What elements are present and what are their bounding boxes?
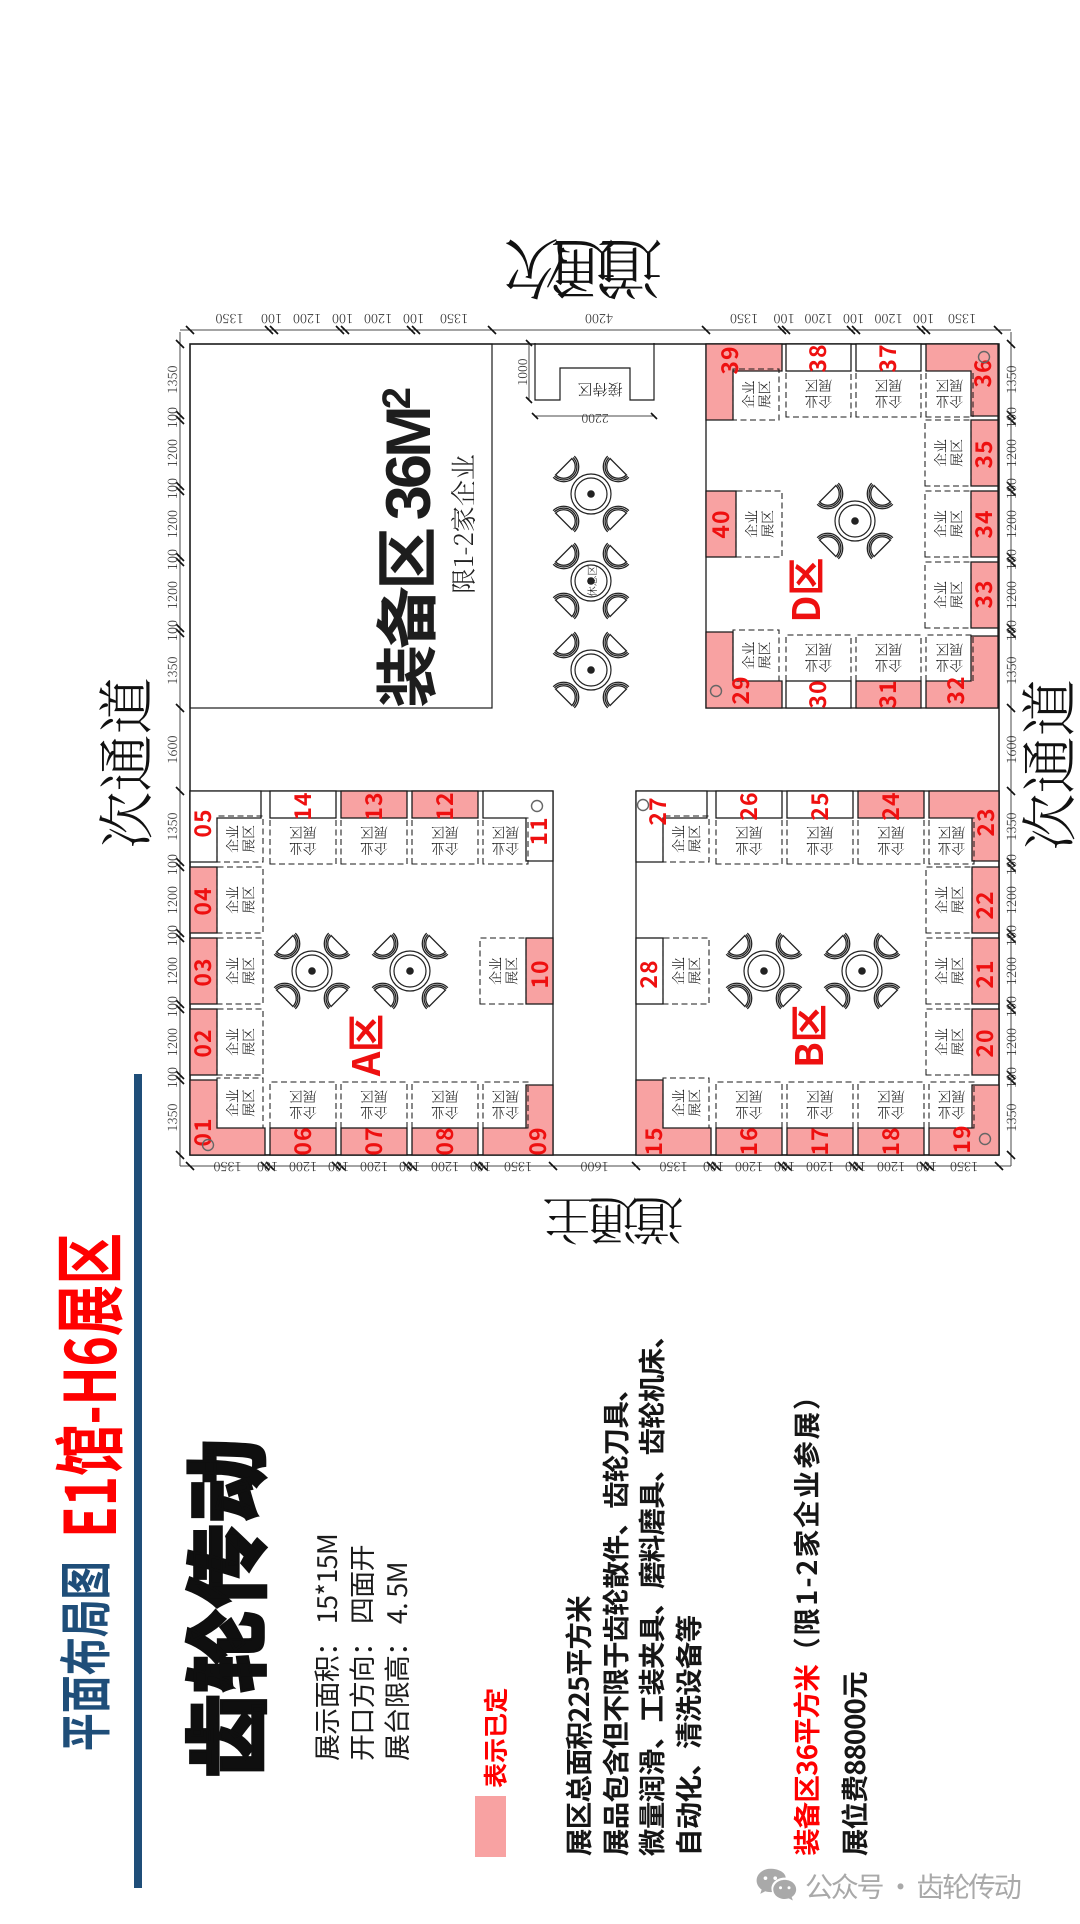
svg-text:100: 100 [1001,854,1020,875]
svg-text:展区: 展区 [501,957,521,985]
svg-text:100: 100 [774,1158,795,1177]
svg-text:03: 03 [184,957,218,986]
svg-text:1200: 1200 [804,310,832,329]
svg-text:1200: 1200 [293,310,321,329]
svg-text:1350: 1350 [213,1158,241,1177]
svg-text:26: 26 [730,791,764,820]
svg-text:道: 道 [597,225,663,320]
svg-text:100: 100 [328,1158,349,1177]
svg-text:展区: 展区 [947,1028,967,1056]
svg-text:展区: 展区 [431,824,459,844]
svg-text:100: 100 [162,620,181,641]
svg-text:展区: 展区 [805,377,833,397]
svg-text:100: 100 [332,310,353,329]
svg-text:展区: 展区 [875,641,903,661]
svg-text:1200: 1200 [1001,510,1020,538]
svg-text:06: 06 [284,1126,318,1155]
svg-text:次通道: 次通道 [82,678,164,849]
svg-text:1600: 1600 [162,735,181,763]
svg-text:1350: 1350 [1001,365,1020,393]
svg-text:展区: 展区 [946,581,966,609]
svg-text:100: 100 [162,854,181,875]
svg-text:1200: 1200 [162,886,181,914]
svg-text:展区: 展区 [938,824,966,844]
svg-text:1200: 1200 [162,439,181,467]
svg-text:100: 100 [913,310,934,329]
svg-text:1200: 1200 [1001,1028,1020,1056]
svg-text:32: 32 [937,675,971,704]
svg-text:展区: 展区 [938,1088,966,1108]
svg-text:B区: B区 [779,1004,834,1068]
svg-text:100: 100 [1001,925,1020,946]
svg-text:展区: 展区 [238,1028,258,1056]
svg-text:次通道: 次通道 [1005,680,1080,851]
svg-text:1000: 1000 [513,358,531,385]
svg-text:展区: 展区 [805,641,833,661]
svg-text:展区: 展区 [946,439,966,467]
svg-text:12: 12 [426,791,460,820]
svg-text:100: 100 [773,310,794,329]
svg-text:100: 100 [703,1158,724,1177]
svg-text:1200: 1200 [289,1158,317,1177]
svg-text:接待区: 接待区 [577,379,622,400]
svg-text:展区: 展区 [806,1088,834,1108]
svg-text:08: 08 [426,1126,460,1155]
svg-text:100: 100 [916,1158,937,1177]
svg-text:30: 30 [799,679,833,708]
svg-text:100: 100 [845,1158,866,1177]
svg-text:24: 24 [872,791,906,820]
svg-text:11: 11 [520,816,554,845]
svg-text:13: 13 [355,791,389,820]
svg-text:100: 100 [257,1158,278,1177]
svg-text:展区: 展区 [754,642,774,670]
svg-text:100: 100 [1001,478,1020,499]
svg-text:04: 04 [184,886,218,915]
svg-text:100: 100 [843,310,864,329]
svg-text:23: 23 [967,807,1001,836]
svg-text:1200: 1200 [1001,581,1020,609]
svg-text:29: 29 [722,675,756,704]
svg-text:休息区: 休息区 [585,565,600,597]
svg-text:展区: 展区 [360,824,388,844]
svg-text:1200: 1200 [162,957,181,985]
svg-text:1200: 1200 [1001,957,1020,985]
svg-text:展区: 展区 [735,824,763,844]
svg-text:16: 16 [730,1126,764,1155]
svg-text:100: 100 [162,996,181,1017]
svg-text:展区: 展区 [735,1088,763,1108]
svg-text:展区: 展区 [492,1088,520,1108]
svg-text:15: 15 [635,1126,669,1155]
svg-text:1200: 1200 [162,1028,181,1056]
svg-text:31: 31 [869,679,903,708]
svg-text:100: 100 [162,478,181,499]
svg-text:限1-2家企业: 限1-2家企业 [444,454,481,593]
svg-text:22: 22 [966,890,1000,919]
svg-text:D区: D区 [776,557,831,622]
svg-text:14: 14 [284,791,318,820]
svg-text:1350: 1350 [215,310,243,329]
svg-text:34: 34 [965,509,999,538]
svg-text:1200: 1200 [1001,439,1020,467]
svg-text:1350: 1350 [659,1158,687,1177]
svg-text:100: 100 [1001,407,1020,428]
svg-text:18: 18 [872,1126,906,1155]
svg-text:主: 主 [542,1186,594,1261]
svg-text:1350: 1350 [948,310,976,329]
svg-text:100: 100 [1001,1067,1020,1088]
svg-text:展区: 展区 [806,824,834,844]
svg-text:1600: 1600 [580,1158,608,1177]
svg-text:09: 09 [519,1126,553,1155]
svg-text:展区: 展区 [238,957,258,985]
svg-text:100: 100 [162,549,181,570]
svg-text:1350: 1350 [950,1158,978,1177]
svg-text:1350: 1350 [162,1103,181,1131]
svg-text:展区: 展区 [877,1088,905,1108]
svg-text:展区: 展区 [936,641,964,661]
svg-text:100: 100 [399,1158,420,1177]
svg-text:17: 17 [801,1126,835,1155]
svg-text:装备区 36M2: 装备区 36M2 [358,387,449,708]
svg-text:1200: 1200 [162,581,181,609]
svg-text:1350: 1350 [162,365,181,393]
svg-text:1350: 1350 [162,812,181,840]
svg-text:展区: 展区 [360,1088,388,1108]
svg-text:1200: 1200 [431,1158,459,1177]
svg-text:37: 37 [869,343,903,372]
svg-text:100: 100 [162,925,181,946]
svg-text:100: 100 [261,310,282,329]
svg-text:05: 05 [184,808,218,837]
svg-text:展区: 展区 [289,824,317,844]
svg-text:展区: 展区 [289,1088,317,1108]
svg-text:展区: 展区 [684,957,704,985]
svg-text:07: 07 [355,1126,389,1155]
svg-text:100: 100 [1001,620,1020,641]
svg-text:40: 40 [702,509,736,538]
svg-text:1350: 1350 [1001,1103,1020,1131]
svg-text:展区: 展区 [431,1088,459,1108]
svg-text:展区: 展区 [757,510,777,538]
svg-text:展区: 展区 [238,886,258,914]
svg-text:道: 道 [632,1186,684,1261]
svg-text:02: 02 [184,1028,218,1057]
svg-text:展区: 展区 [947,886,967,914]
svg-text:1200: 1200 [364,310,392,329]
svg-text:1200: 1200 [877,1158,905,1177]
svg-text:展区: 展区 [754,381,774,409]
svg-text:展区: 展区 [947,957,967,985]
svg-text:展区: 展区 [684,1089,704,1117]
svg-text:1200: 1200 [360,1158,388,1177]
svg-text:展区: 展区 [684,825,704,853]
svg-text:100: 100 [162,1067,181,1088]
svg-text:35: 35 [965,439,999,468]
svg-text:100: 100 [470,1158,491,1177]
svg-text:展区: 展区 [238,825,258,853]
svg-text:1200: 1200 [806,1158,834,1177]
svg-text:36: 36 [964,358,998,387]
svg-text:28: 28 [630,959,664,988]
svg-text:A区: A区 [336,1014,391,1077]
svg-text:20: 20 [966,1028,1000,1057]
svg-text:展区: 展区 [875,377,903,397]
svg-text:1350: 1350 [504,1158,532,1177]
svg-text:展区: 展区 [936,377,964,397]
svg-text:100: 100 [1001,549,1020,570]
svg-text:1350: 1350 [440,310,468,329]
svg-text:39: 39 [711,345,745,374]
svg-text:21: 21 [966,959,1000,988]
svg-text:100: 100 [1001,996,1020,1017]
svg-text:1200: 1200 [874,310,902,329]
svg-text:通: 通 [587,1186,639,1261]
svg-text:展区: 展区 [877,824,905,844]
svg-text:1350: 1350 [162,656,181,684]
svg-text:展区: 展区 [492,824,520,844]
svg-text:展区: 展区 [946,510,966,538]
svg-text:100: 100 [162,407,181,428]
svg-text:2200: 2200 [581,410,608,428]
svg-text:1200: 1200 [1001,886,1020,914]
svg-text:1350: 1350 [730,310,758,329]
svg-text:10: 10 [521,959,555,988]
svg-text:19: 19 [943,1124,977,1153]
svg-text:25: 25 [801,791,835,820]
svg-text:38: 38 [799,343,833,372]
svg-text:1200: 1200 [735,1158,763,1177]
svg-text:展区: 展区 [238,1089,258,1117]
svg-text:100: 100 [403,310,424,329]
svg-text:33: 33 [965,579,999,608]
svg-text:1200: 1200 [162,510,181,538]
